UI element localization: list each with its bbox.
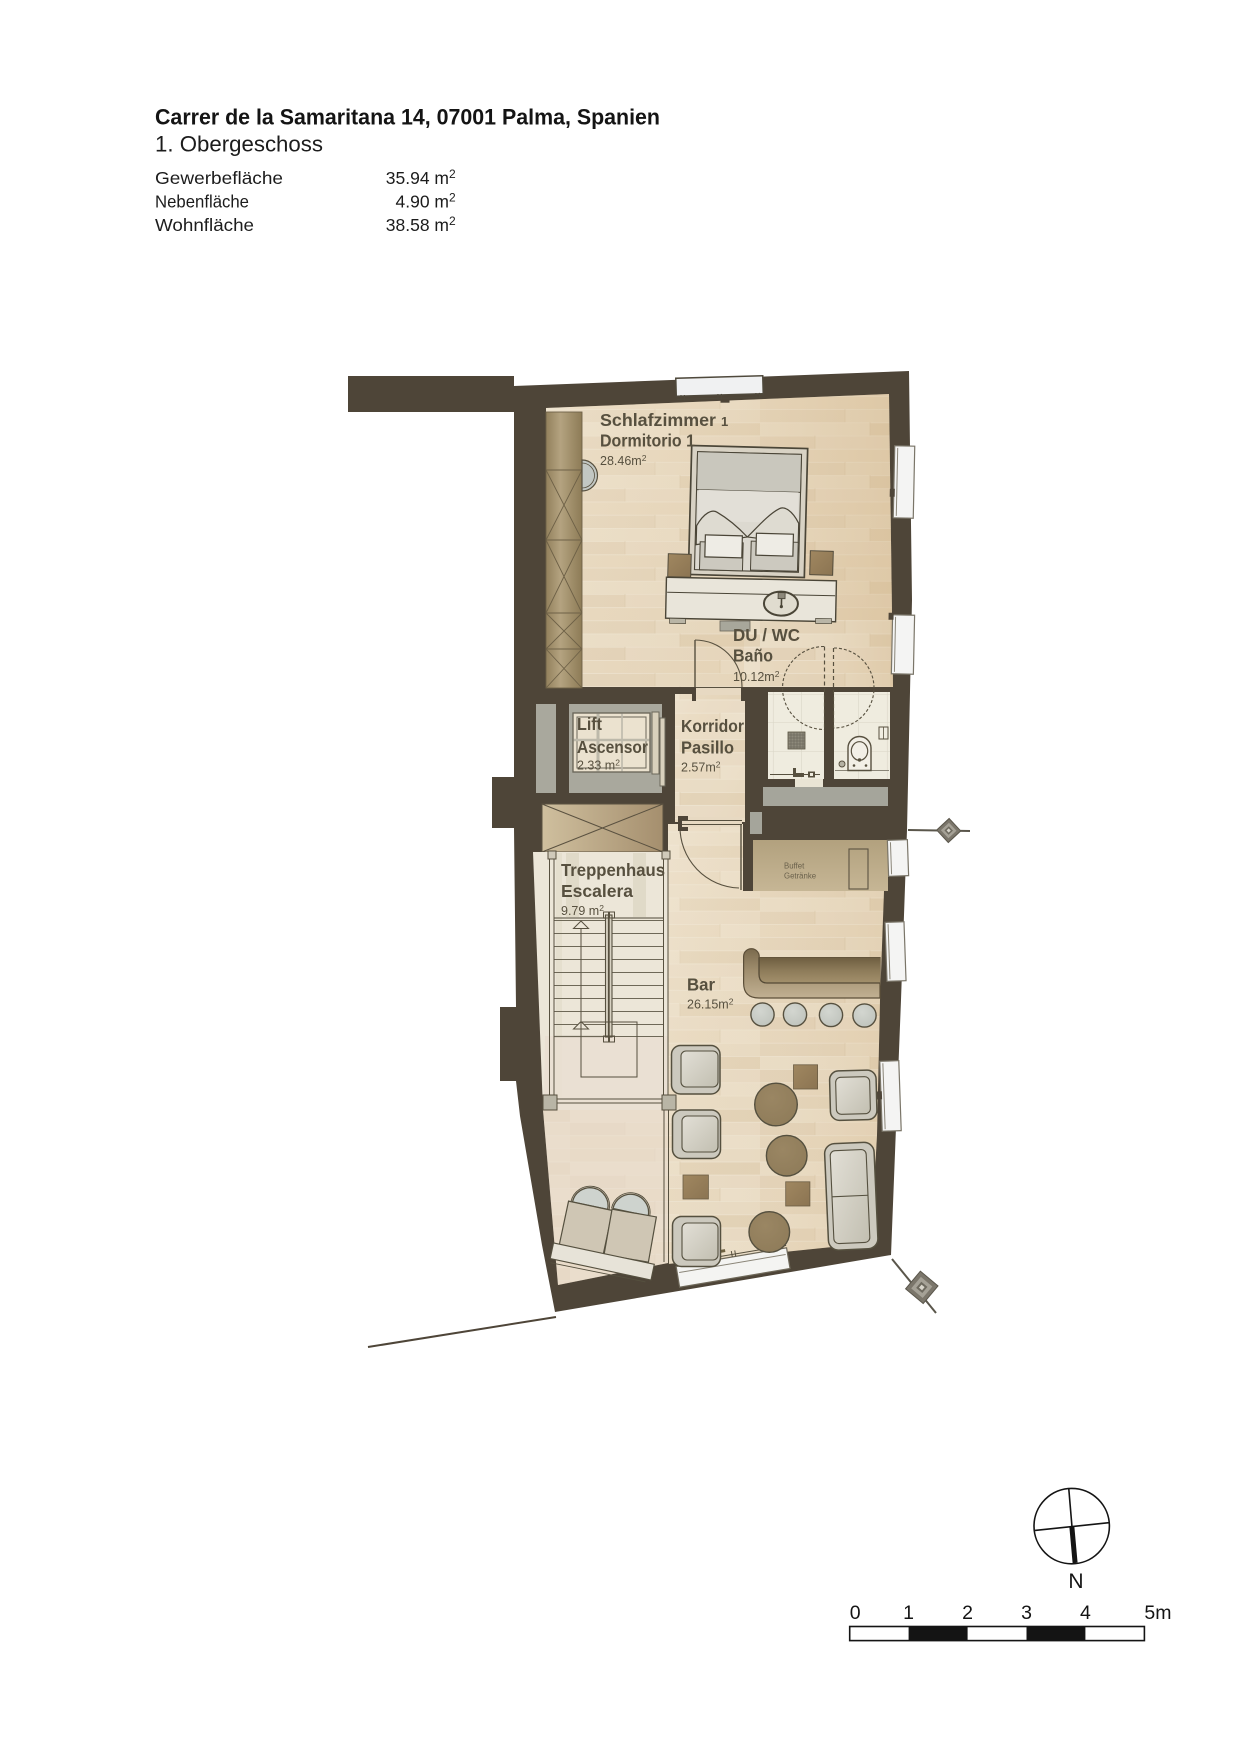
svg-text:9.79 m2: 9.79 m2: [561, 903, 604, 918]
svg-text:1: 1: [721, 414, 728, 429]
svg-text:Carrer de la Samaritana 14, 07: Carrer de la Samaritana 14, 07001 Palma,…: [155, 105, 660, 130]
svg-text:Escalera: Escalera: [561, 881, 633, 901]
svg-text:DU / WC: DU / WC: [733, 625, 800, 645]
svg-text:2: 2: [449, 214, 456, 228]
svg-text:2.33 m2: 2.33 m2: [577, 758, 620, 773]
svg-text:1: 1: [903, 1602, 914, 1624]
svg-text:Ascensor: Ascensor: [577, 737, 648, 757]
svg-text:5m: 5m: [1144, 1602, 1171, 1624]
svg-text:2: 2: [449, 167, 456, 181]
svg-text:3: 3: [1021, 1602, 1032, 1624]
svg-text:28.46m2: 28.46m2: [600, 453, 647, 468]
svg-text:Bar: Bar: [687, 975, 715, 995]
svg-text:35.94 m: 35.94 m: [386, 168, 449, 188]
svg-text:Pasillo: Pasillo: [681, 738, 734, 758]
svg-text:N: N: [1068, 1570, 1083, 1593]
svg-text:Gewerbefläche: Gewerbefläche: [155, 168, 283, 188]
svg-text:Schlafzimmer: Schlafzimmer: [600, 410, 716, 430]
svg-text:10.12m2: 10.12m2: [733, 669, 780, 684]
svg-text:Wohnfläche: Wohnfläche: [155, 215, 254, 235]
svg-text:Lift: Lift: [577, 714, 602, 734]
svg-text:26.15m2: 26.15m2: [687, 997, 734, 1012]
svg-text:Baño: Baño: [733, 646, 773, 666]
svg-text:4.90 m: 4.90 m: [396, 192, 450, 212]
svg-text:2: 2: [962, 1602, 973, 1624]
svg-text:Treppenhaus: Treppenhaus: [561, 860, 665, 880]
svg-text:38.58 m: 38.58 m: [386, 215, 449, 235]
svg-text:Dormitorio 1: Dormitorio 1: [600, 431, 695, 451]
svg-text:0: 0: [850, 1602, 861, 1624]
svg-text:Korridor: Korridor: [681, 716, 744, 736]
svg-text:Nebenfläche: Nebenfläche: [155, 192, 249, 212]
svg-text:Buffet: Buffet: [784, 862, 805, 871]
svg-text:4: 4: [1080, 1602, 1091, 1624]
svg-text:2: 2: [449, 191, 456, 205]
svg-text:1. Obergeschoss: 1. Obergeschoss: [155, 132, 323, 157]
svg-text:Getränke: Getränke: [784, 872, 816, 881]
svg-text:2.57m2: 2.57m2: [681, 760, 721, 775]
